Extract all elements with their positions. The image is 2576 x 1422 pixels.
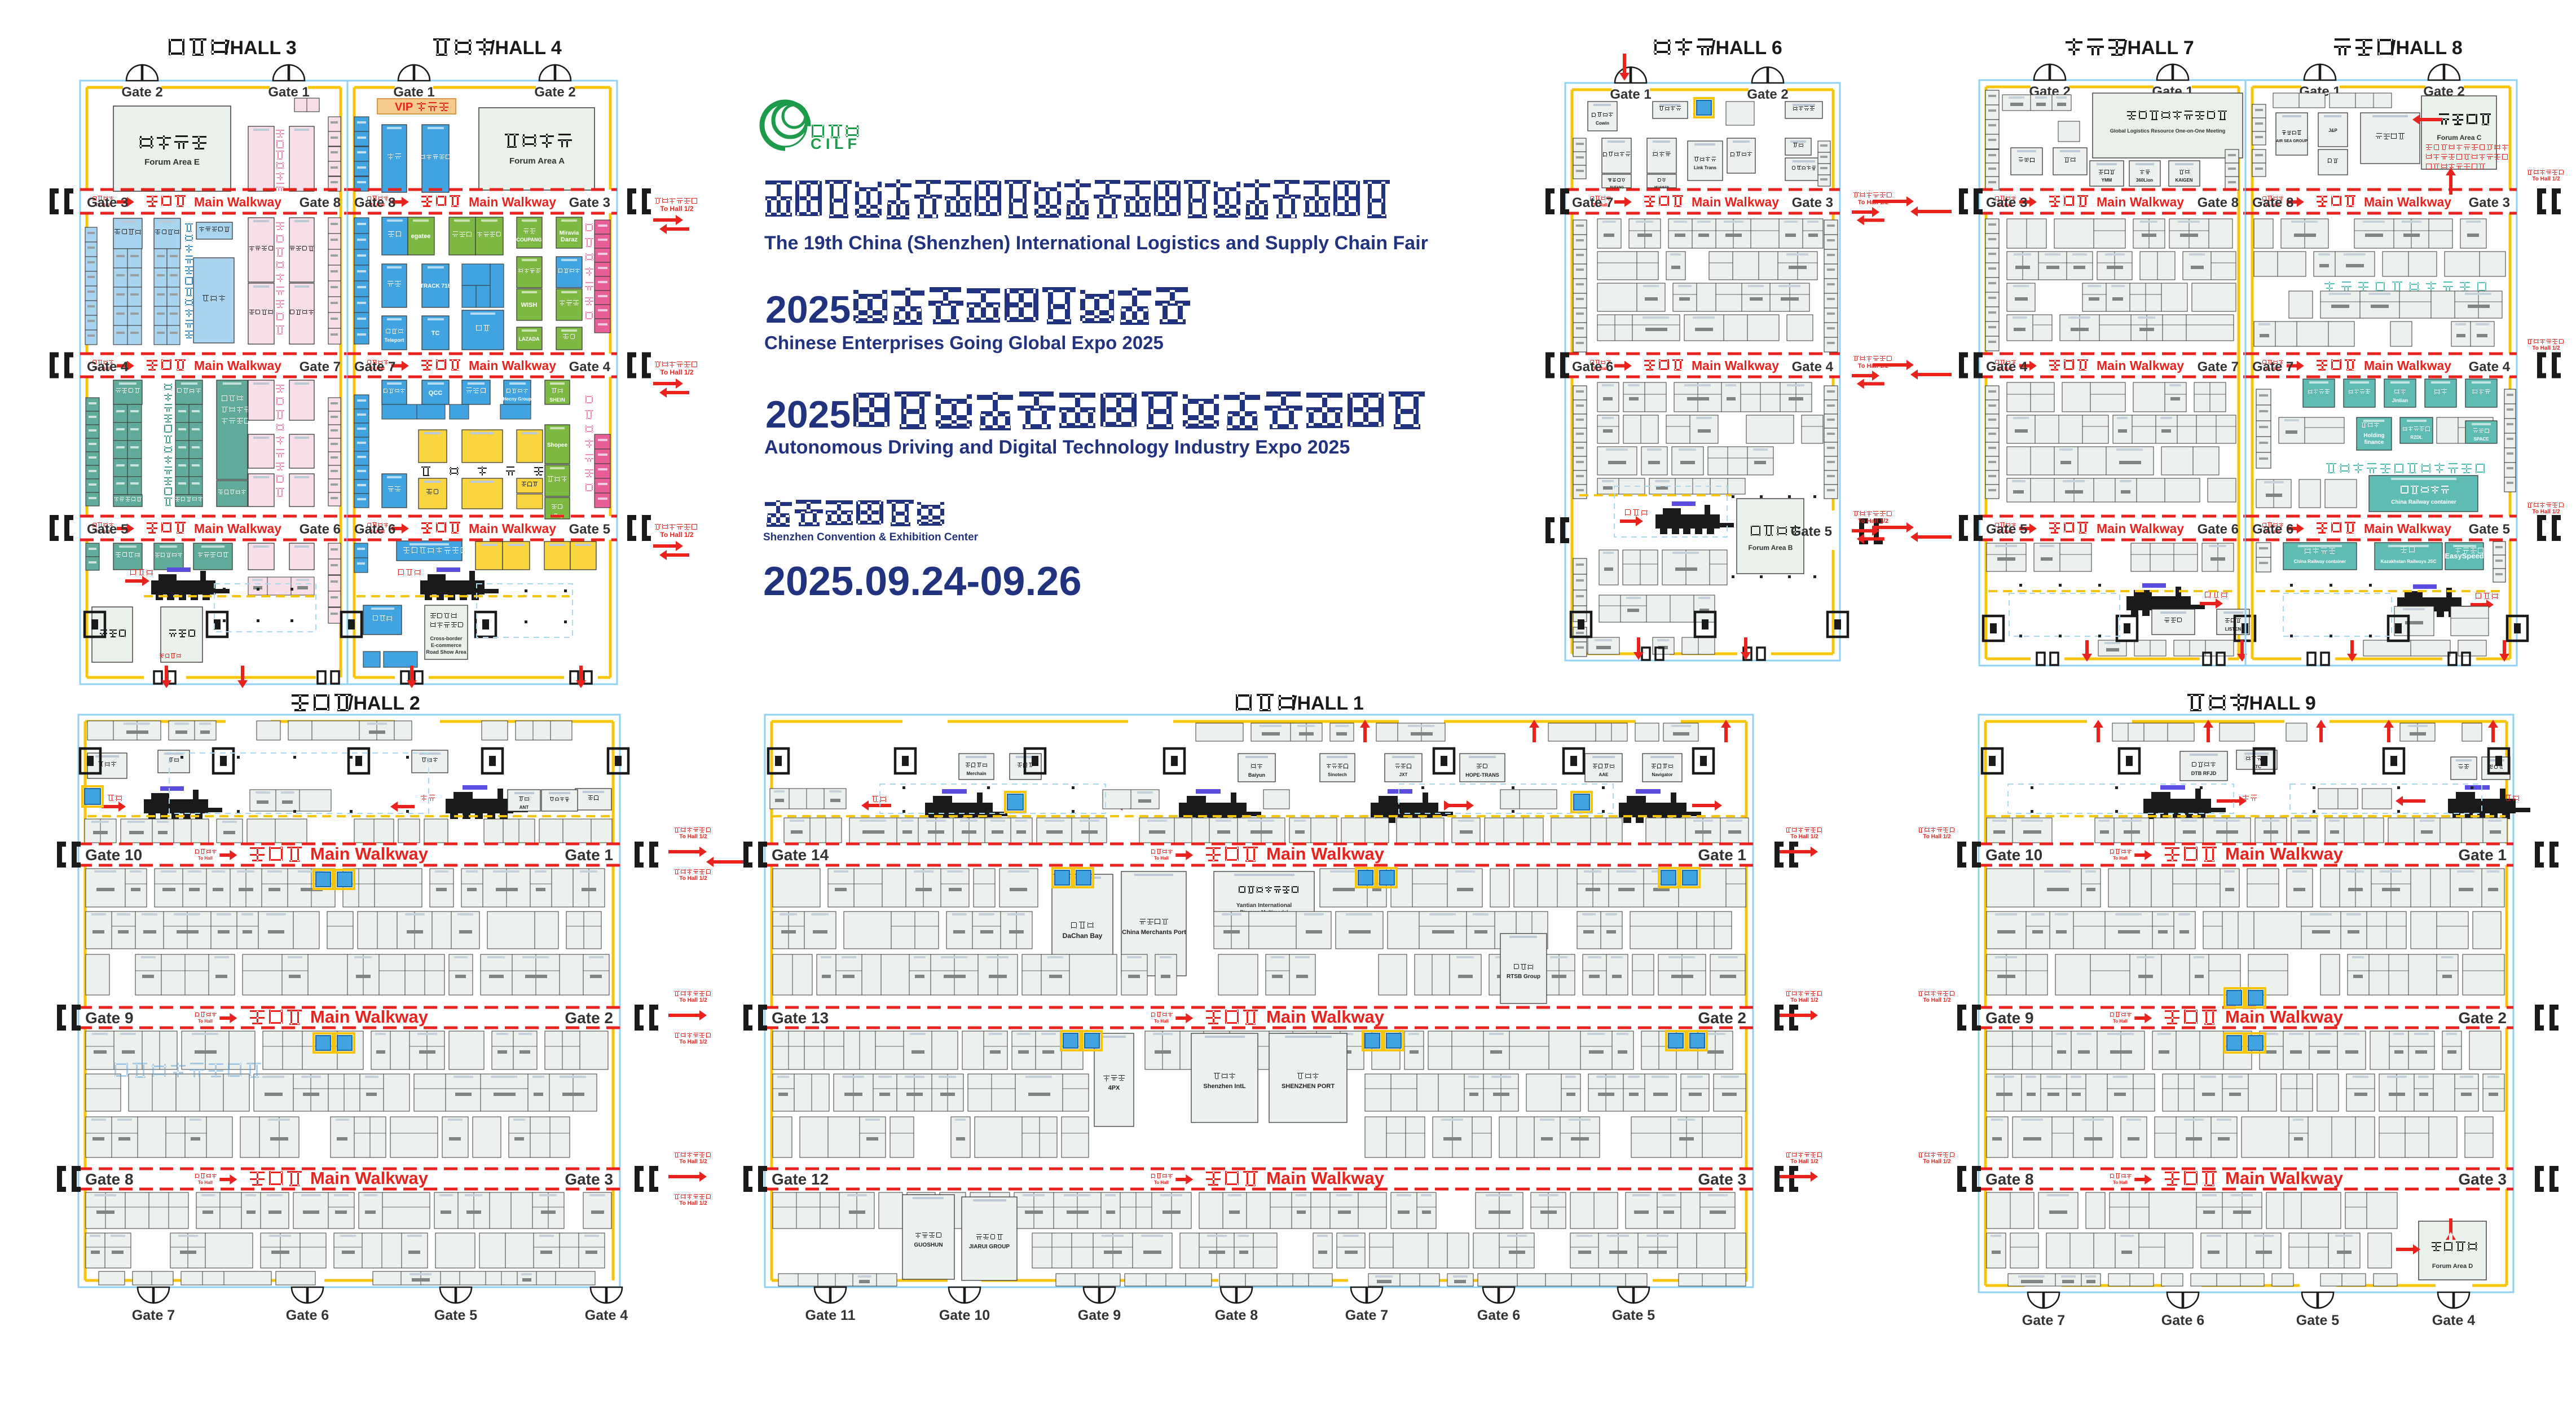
svg-text:VIP: VIP [395, 101, 413, 113]
svg-text:Miravia: Miravia [560, 230, 579, 236]
svg-text:Gate 3: Gate 3 [1986, 195, 2027, 210]
svg-text:Main Walkway: Main Walkway [310, 844, 429, 864]
svg-text:Gate 4: Gate 4 [2469, 359, 2511, 375]
svg-text:360Lion: 360Lion [2136, 178, 2153, 183]
svg-text:Gate 3: Gate 3 [2458, 1170, 2507, 1188]
svg-text:Gate 10: Gate 10 [85, 846, 142, 864]
svg-text:To Hall 1/2: To Hall 1/2 [2532, 345, 2560, 351]
svg-text:ANT: ANT [519, 805, 529, 810]
svg-text:Merchain: Merchain [966, 771, 986, 776]
svg-text:Gate 4: Gate 4 [2432, 1313, 2476, 1328]
svg-text:/HALL 6: /HALL 6 [1710, 37, 1782, 59]
svg-text:Kazakhstan Railways JSC: Kazakhstan Railways JSC [2381, 559, 2437, 564]
svg-text:Main Walkway: Main Walkway [469, 521, 556, 536]
svg-text:Forum Area A: Forum Area A [509, 156, 565, 166]
svg-text:Cowin: Cowin [1596, 121, 1609, 126]
svg-text:To Hall 1/2: To Hall 1/2 [1790, 997, 1818, 1003]
svg-text:Gate 5: Gate 5 [434, 1307, 478, 1323]
svg-text:Gate 8: Gate 8 [1985, 1170, 2034, 1188]
svg-text:Gate 3: Gate 3 [569, 195, 610, 210]
svg-text:To Hall 1/2: To Hall 1/2 [660, 531, 693, 539]
svg-text:To Hall: To Hall [1154, 1180, 1169, 1185]
svg-text:Main Walkway: Main Walkway [194, 521, 281, 536]
svg-text:Main Walkway: Main Walkway [2097, 195, 2184, 209]
svg-text:Shenzhen Convention & Exhibiti: Shenzhen Convention & Exhibition Center [763, 531, 979, 543]
svg-text:To Hall 1/2: To Hall 1/2 [1923, 1159, 1951, 1165]
svg-text:To Hall: To Hall [1154, 856, 1169, 861]
svg-text:2025: 2025 [765, 288, 851, 331]
svg-text:Gate 4: Gate 4 [1986, 359, 2028, 375]
svg-text:Main Walkway: Main Walkway [310, 1168, 429, 1188]
svg-text:Gate 1: Gate 1 [565, 846, 613, 864]
svg-text:J&P: J&P [2328, 128, 2337, 133]
svg-text:Gate 13: Gate 13 [772, 1009, 829, 1027]
svg-text:To Hall: To Hall [198, 856, 213, 861]
svg-text:QCC: QCC [429, 390, 443, 397]
svg-text:Gate 1: Gate 1 [1610, 87, 1651, 102]
svg-text:Chinese Enterprises Going Glob: Chinese Enterprises Going Global Expo 20… [764, 332, 1164, 353]
svg-text:Gate 6: Gate 6 [1572, 359, 1613, 375]
svg-text:SHEIN: SHEIN [549, 397, 565, 403]
svg-text:To Hall: To Hall [198, 1180, 213, 1185]
svg-text:Gate 1: Gate 1 [2458, 846, 2507, 864]
svg-text:HOPE-TRANS: HOPE-TRANS [1465, 772, 1499, 778]
svg-text:Daraz: Daraz [561, 236, 578, 243]
svg-text:Gate 8: Gate 8 [1215, 1307, 1258, 1323]
svg-text:Gate 10: Gate 10 [1985, 846, 2042, 864]
svg-text:To Hall 1/2: To Hall 1/2 [660, 368, 693, 376]
svg-text:/HALL 7: /HALL 7 [2122, 37, 2194, 59]
svg-text:Main Walkway: Main Walkway [2097, 358, 2184, 373]
svg-text:Link Trans: Link Trans [1694, 165, 1717, 170]
svg-text:To Hall 1/2: To Hall 1/2 [679, 1200, 707, 1207]
svg-text:Gate 2: Gate 2 [1698, 1009, 1746, 1027]
svg-text:Sinotech: Sinotech [1328, 772, 1347, 777]
svg-text:To Hall 1/2: To Hall 1/2 [1858, 518, 1888, 525]
svg-text:Main Walkway: Main Walkway [1692, 358, 1779, 373]
svg-text:YMM: YMM [2102, 178, 2112, 183]
svg-text:SPACE: SPACE [2474, 437, 2490, 442]
svg-text:To Hall: To Hall [198, 1019, 213, 1024]
svg-text:Gate 3: Gate 3 [1698, 1170, 1746, 1188]
svg-text:Main Walkway: Main Walkway [2225, 1168, 2344, 1188]
svg-text:2025: 2025 [765, 393, 851, 436]
svg-text:Gate 4: Gate 4 [87, 359, 129, 375]
svg-text:To Hall 1/2: To Hall 1/2 [679, 1039, 707, 1045]
svg-text:Main Walkway: Main Walkway [1266, 844, 1385, 864]
svg-text:Jinlian: Jinlian [2392, 398, 2408, 403]
svg-text:/HALL 8: /HALL 8 [2390, 37, 2463, 59]
svg-text:Gate 10: Gate 10 [939, 1307, 990, 1323]
svg-text:Gate 9: Gate 9 [1078, 1307, 1121, 1323]
svg-text:To Hall: To Hall [2113, 856, 2128, 861]
svg-text:To Hall 1/2: To Hall 1/2 [1923, 997, 1951, 1003]
svg-text:Forum Area C: Forum Area C [2437, 134, 2482, 142]
svg-text:To Hall 1/2: To Hall 1/2 [679, 834, 707, 840]
svg-text:Gate 7: Gate 7 [354, 359, 395, 375]
svg-text:Shenzhen IntL: Shenzhen IntL [1203, 1083, 1245, 1090]
svg-text:Gate 5: Gate 5 [569, 522, 610, 537]
svg-text:egatee: egatee [411, 233, 431, 240]
svg-text:/HALL 1: /HALL 1 [1292, 693, 1364, 714]
svg-text:Gate 12: Gate 12 [772, 1170, 829, 1188]
svg-text:To Hall 1/2: To Hall 1/2 [1790, 834, 1818, 840]
svg-text:Gate 1: Gate 1 [393, 85, 434, 100]
svg-text:Gate 5: Gate 5 [2469, 522, 2510, 537]
svg-text:To Hall 1/2: To Hall 1/2 [679, 997, 707, 1003]
svg-text:KAIGEN: KAIGEN [2175, 178, 2192, 183]
svg-text:4PX: 4PX [1108, 1085, 1120, 1091]
svg-text:Forum Area D: Forum Area D [2432, 1263, 2473, 1270]
svg-text:Global Logistics Resource One-: Global Logistics Resource One-on-One Mee… [2110, 128, 2226, 134]
svg-text:SHENZHEN PORT: SHENZHEN PORT [1282, 1083, 1335, 1090]
svg-text:E-commerce: E-commerce [431, 642, 461, 648]
svg-text:RTSB Group: RTSB Group [1507, 974, 1540, 980]
svg-text:Main Walkway: Main Walkway [2364, 521, 2451, 536]
svg-text:Gate 8: Gate 8 [300, 195, 341, 210]
svg-text:Teleport: Teleport [385, 337, 404, 343]
svg-text:Baiyun: Baiyun [1248, 772, 1265, 778]
svg-text:Gate 2: Gate 2 [2458, 1009, 2507, 1027]
svg-text:To Hall: To Hall [2113, 1019, 2128, 1024]
svg-text:AIR SEA GROUP: AIR SEA GROUP [2276, 139, 2308, 143]
svg-text:Gate 6: Gate 6 [300, 522, 341, 537]
svg-text:Main Walkway: Main Walkway [2364, 195, 2451, 209]
svg-text:JIARUI GROUP: JIARUI GROUP [969, 1244, 1010, 1250]
svg-text:Main Walkway: Main Walkway [2097, 521, 2184, 536]
svg-text:Gate 8: Gate 8 [2252, 195, 2293, 210]
svg-text:/HALL 3: /HALL 3 [224, 37, 297, 59]
svg-text:Gate 1: Gate 1 [1698, 846, 1746, 864]
svg-text:Gate 4: Gate 4 [569, 359, 611, 375]
svg-text:Gate 4: Gate 4 [1792, 359, 1834, 375]
svg-text:Gate 4: Gate 4 [585, 1307, 628, 1323]
svg-text:Main Walkway: Main Walkway [194, 195, 281, 209]
svg-text:Gate 6: Gate 6 [2252, 522, 2293, 537]
svg-text:Main Walkway: Main Walkway [1266, 1007, 1385, 1027]
svg-text:Gate 2: Gate 2 [1747, 87, 1788, 102]
svg-text:Gate 6: Gate 6 [2161, 1313, 2204, 1328]
svg-text:Gate 5: Gate 5 [2296, 1313, 2340, 1328]
svg-text:/HALL 2: /HALL 2 [348, 693, 420, 714]
svg-text:To Hall 1/2: To Hall 1/2 [1923, 834, 1951, 840]
svg-text:Cross-border: Cross-border [430, 636, 463, 641]
svg-text:Gate 6: Gate 6 [2198, 522, 2239, 537]
svg-text:2025.09.24-09.26: 2025.09.24-09.26 [763, 559, 1082, 604]
svg-text:Main Walkway: Main Walkway [1266, 1168, 1385, 1188]
svg-text:Gate 14: Gate 14 [772, 846, 829, 864]
svg-text:Shopee: Shopee [547, 442, 568, 448]
svg-text:Forum Area B: Forum Area B [1749, 544, 1793, 552]
svg-text:Main Walkway: Main Walkway [2364, 358, 2451, 373]
svg-text:To Hall: To Hall [1154, 1019, 1169, 1024]
svg-text:Gate 3: Gate 3 [2469, 195, 2510, 210]
svg-text:Gate 5: Gate 5 [1791, 524, 1832, 539]
svg-text:LAZADA: LAZADA [519, 336, 540, 342]
svg-text:TC: TC [431, 330, 440, 337]
svg-text:Gate 7: Gate 7 [300, 359, 341, 375]
svg-text:China Merchants Port: China Merchants Port [1122, 929, 1186, 936]
svg-text:Forum Area E: Forum Area E [144, 157, 200, 167]
svg-text:Navigator: Navigator [1652, 772, 1673, 777]
svg-text:To Hall 1/2: To Hall 1/2 [660, 205, 693, 213]
svg-text:Gate 5: Gate 5 [1986, 522, 2027, 537]
svg-text:Gate 3: Gate 3 [565, 1170, 613, 1188]
svg-text:Gate 6: Gate 6 [286, 1307, 329, 1323]
svg-text:GUOSHUN: GUOSHUN [914, 1242, 943, 1248]
svg-text:Gate 8: Gate 8 [2198, 195, 2239, 210]
svg-text:Gate 9: Gate 9 [85, 1009, 134, 1027]
svg-text:Autonomous Driving and Digital: Autonomous Driving and Digital Technolog… [764, 437, 1350, 458]
svg-text:/HALL 9: /HALL 9 [2244, 693, 2316, 714]
svg-text:Gate 3: Gate 3 [1792, 195, 1833, 210]
svg-text:RZDL: RZDL [2410, 435, 2422, 440]
svg-text:Gate 11: Gate 11 [805, 1307, 856, 1323]
svg-text:Main Walkway: Main Walkway [2225, 844, 2344, 864]
svg-text:Gate 3: Gate 3 [87, 195, 128, 210]
svg-text:Gate 8: Gate 8 [85, 1170, 134, 1188]
svg-text:Main Walkway: Main Walkway [310, 1007, 429, 1027]
svg-text:China Railway container: China Railway container [2391, 499, 2456, 505]
svg-text:To Hall 1/2: To Hall 1/2 [2532, 176, 2560, 182]
svg-text:Gate 2: Gate 2 [565, 1009, 613, 1027]
svg-text:The 19th China (Shenzhen) Inte: The 19th China (Shenzhen) International … [764, 232, 1428, 254]
svg-text:COUPANG: COUPANG [516, 237, 541, 243]
svg-text:Gate 9: Gate 9 [1985, 1009, 2034, 1027]
svg-text:DaChan Bay: DaChan Bay [1063, 932, 1103, 940]
svg-text:Gate 7: Gate 7 [1345, 1307, 1388, 1323]
svg-text:Gate 7: Gate 7 [2252, 359, 2293, 375]
svg-text:finance: finance [2364, 439, 2384, 446]
svg-text:JXT: JXT [1399, 772, 1408, 777]
svg-text:Yantian International: Yantian International [1236, 902, 1292, 909]
svg-text:Road Show Area: Road Show Area [426, 649, 466, 655]
svg-text:To Hall 1/2: To Hall 1/2 [1790, 1159, 1818, 1165]
svg-text:To Hall 1/2: To Hall 1/2 [2532, 509, 2560, 515]
svg-text:To Hall 1/2: To Hall 1/2 [679, 1159, 707, 1165]
svg-text:/HALL 4: /HALL 4 [490, 37, 562, 59]
svg-text:Gate 6: Gate 6 [1477, 1307, 1520, 1323]
svg-text:Holding: Holding [2363, 433, 2384, 439]
svg-text:TRACK 718: TRACK 718 [420, 283, 451, 289]
svg-text:WISH: WISH [521, 302, 538, 309]
svg-text:Gate 6: Gate 6 [354, 522, 395, 537]
svg-text:To Hall 1/2: To Hall 1/2 [679, 875, 707, 882]
svg-text:Main Walkway: Main Walkway [469, 195, 556, 209]
svg-text:LISTEN: LISTEN [2225, 627, 2242, 632]
svg-text:Gate 1: Gate 1 [268, 85, 309, 100]
svg-text:Gate 2: Gate 2 [121, 85, 162, 100]
svg-text:DTB RFJD: DTB RFJD [2191, 771, 2217, 776]
svg-text:Main Walkway: Main Walkway [194, 358, 281, 373]
svg-text:Gate 2: Gate 2 [534, 85, 575, 100]
svg-text:Gate 7: Gate 7 [1572, 195, 1613, 210]
svg-text:Gate 7: Gate 7 [2198, 359, 2239, 375]
svg-text:Main Walkway: Main Walkway [469, 358, 556, 373]
svg-text:Gate 5: Gate 5 [1612, 1307, 1655, 1323]
svg-text:To Hall: To Hall [2113, 1180, 2128, 1185]
svg-text:Gate 7: Gate 7 [2022, 1313, 2065, 1328]
svg-text:Gate 8: Gate 8 [354, 195, 395, 210]
svg-text:Gate 7: Gate 7 [132, 1307, 175, 1323]
svg-text:Hecny Group: Hecny Group [503, 397, 531, 402]
svg-text:Main Walkway: Main Walkway [1692, 195, 1779, 209]
svg-text:Main Walkway: Main Walkway [2225, 1007, 2344, 1027]
svg-text:AAE: AAE [1599, 772, 1609, 777]
svg-text:C I L F: C I L F [811, 135, 857, 152]
svg-text:Gate 5: Gate 5 [87, 522, 128, 537]
svg-text:China Railway container: China Railway container [2294, 559, 2346, 564]
